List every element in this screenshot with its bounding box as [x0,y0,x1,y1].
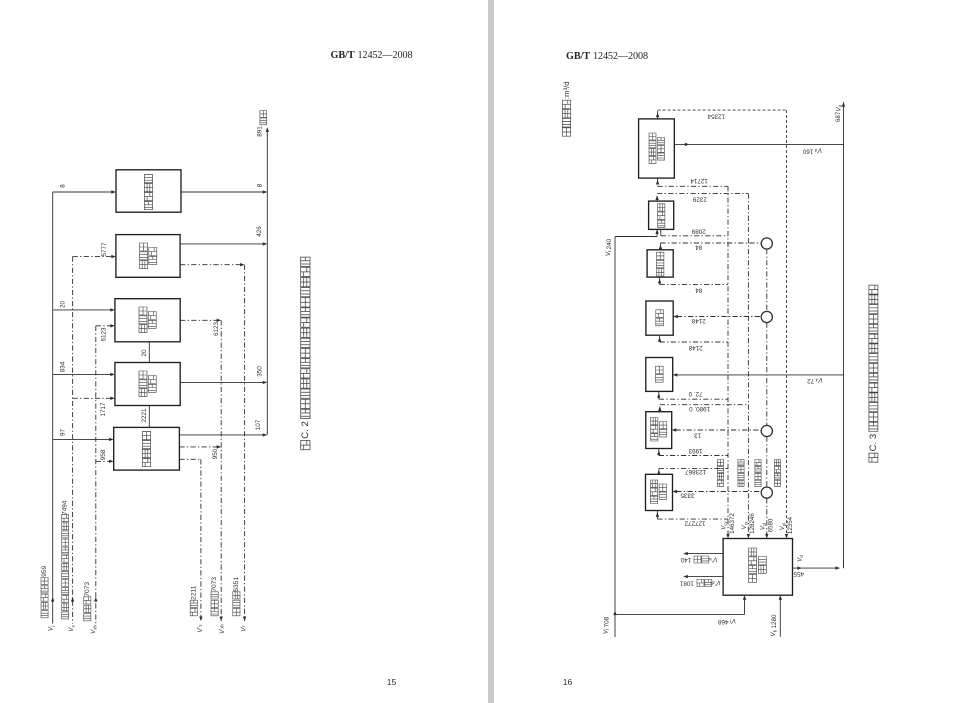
svg-text:20: 20 [141,349,148,357]
svg-text:Vpl: Vpl [778,523,786,531]
svg-text:1717: 1717 [100,402,107,417]
svg-text:7073: 7073 [84,582,91,597]
svg-text:15: 15 [387,677,397,687]
svg-text:Vs: Vs [68,625,76,632]
svg-text:C. 2: C. 2 [300,416,311,443]
svg-text:2329: 2329 [692,195,707,202]
svg-text:8: 8 [256,183,263,187]
svg-text:97: 97 [60,429,67,437]
svg-text:140: 140 [680,556,691,563]
svg-text:6123: 6123 [213,322,220,337]
svg-text:128246: 128246 [749,513,756,534]
svg-text:2148: 2148 [688,344,703,351]
svg-text:13: 13 [694,432,702,439]
svg-text:958: 958 [100,449,107,460]
svg-text:Vf 708: Vf 708 [602,616,611,634]
svg-text:V″zh: V″zh [710,580,721,588]
svg-text:146372: 146372 [729,513,736,534]
svg-text:1980. 0: 1980. 0 [689,405,711,412]
svg-text:834: 834 [60,361,67,372]
svg-text::m³/d: :m³/d [562,81,571,99]
svg-text:6580: 6580 [768,518,775,532]
svg-text:V″s: V″s [196,624,204,633]
svg-text:127272: 127272 [684,519,706,526]
svg-text:8: 8 [59,184,66,188]
svg-text:Vxh: Vxh [90,625,98,634]
svg-text:7494: 7494 [62,500,69,515]
svg-text:123867: 123867 [685,468,707,475]
svg-text:891: 891 [257,126,264,137]
svg-text:72. 0: 72. 0 [688,390,703,397]
svg-text:12714: 12714 [690,177,708,184]
svg-text:Vd: Vd [796,555,804,562]
svg-text:2211: 2211 [190,585,197,600]
svg-text:6123: 6123 [101,327,108,342]
svg-text:107: 107 [255,419,262,430]
svg-text:V′r: V′r [239,625,247,632]
svg-text:V′d 160: V′d 160 [802,147,822,155]
svg-text:Vb 1280: Vb 1280 [769,614,778,636]
svg-text:5777: 5777 [101,242,108,257]
svg-text:1081: 1081 [679,580,694,587]
svg-text:V′4 72: V′4 72 [807,377,823,385]
svg-text:20: 20 [60,301,67,309]
svg-text:1993: 1993 [688,447,703,454]
svg-text:V″w: V″w [708,556,718,564]
svg-text:5351: 5351 [233,577,240,592]
svg-text:Vj: Vj [47,626,55,631]
svg-text:687Vd: 687Vd [835,104,843,122]
svg-text:84: 84 [695,243,703,250]
svg-text:GB/T12452—2008: GB/T12452—2008 [331,50,413,61]
svg-text:C. 3: C. 3 [868,429,879,456]
svg-text:426: 426 [256,226,263,237]
svg-text:3335: 3335 [680,491,695,498]
svg-text:Vzl: Vzl [759,523,767,530]
svg-text:455: 455 [793,570,804,577]
svg-text:2089: 2089 [691,227,706,234]
svg-text:2148: 2148 [691,317,706,324]
svg-text:7073: 7073 [211,577,218,592]
svg-text:959: 959 [41,565,48,576]
svg-text:Vcr: Vcr [740,521,748,529]
svg-text:16: 16 [563,677,573,687]
svg-text:GB/T12452—2008: GB/T12452—2008 [566,51,648,62]
svg-text:84: 84 [695,287,703,294]
svg-text:2221: 2221 [141,408,148,423]
svg-text:V′xh: V′xh [217,624,225,634]
svg-text:12354: 12354 [787,516,794,534]
svg-text:Vf 240: Vf 240 [605,238,614,256]
svg-text:350: 350 [256,366,263,377]
svg-text:Vcy: Vcy [720,520,728,529]
svg-text:12354: 12354 [707,112,725,119]
svg-text:950: 950 [212,448,219,459]
svg-text:V′f 468: V′f 468 [717,617,736,625]
